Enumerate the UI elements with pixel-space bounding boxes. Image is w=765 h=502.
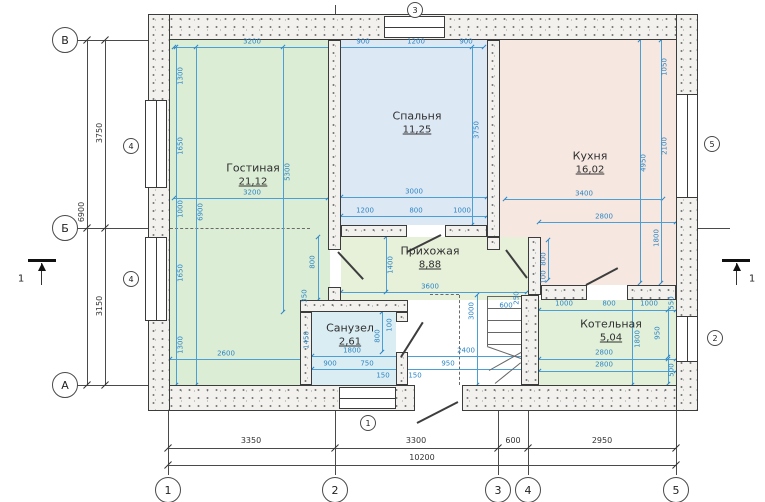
wall-segment: [300, 300, 408, 312]
wall-segment: [521, 295, 539, 385]
room-label: Санузел: [326, 322, 374, 335]
door-leaf: [400, 321, 424, 357]
dimension-line: [312, 356, 528, 357]
room-label: Гостиная: [226, 162, 280, 175]
dimension-label: 3750: [474, 121, 481, 139]
dimension-line: [341, 216, 487, 217]
dimension-label: 2800: [595, 362, 613, 369]
dimension-label: 950: [441, 361, 454, 368]
window-glass-line: [156, 238, 157, 320]
dimension-line: [548, 240, 549, 280]
section-mark-arrow: [733, 263, 741, 271]
axis-circle-3: 3: [485, 477, 511, 502]
window-glass-line: [687, 95, 688, 197]
axis-or-dim-line: [168, 465, 676, 466]
window-glass-line: [385, 27, 444, 28]
wall-segment: [341, 225, 407, 237]
room-area-label: 11,25: [403, 125, 432, 136]
dimension-label: 100: [387, 318, 394, 331]
dimension-label: 1200: [407, 39, 425, 46]
dimension-line: [661, 40, 662, 283]
dimension-line: [341, 197, 487, 198]
dimension-label: 1650: [178, 137, 185, 155]
dashed-line: [459, 295, 461, 385]
dimension-label: 1300: [178, 336, 185, 354]
window-mark-4: 4: [123, 138, 139, 154]
wall-segment: [328, 40, 341, 250]
axis-circle-В: В: [52, 27, 78, 53]
wall-segment: [148, 14, 170, 411]
dimension-line: [539, 222, 676, 223]
wall-segment: [396, 312, 408, 322]
dimension-label: 100: [541, 270, 548, 283]
dimension-label: 1000: [453, 208, 471, 215]
dimension-label: 6900: [78, 202, 86, 222]
dimension-label: 2950: [592, 437, 612, 445]
dimension-label: 6900: [198, 203, 205, 221]
room-area-label: 5,04: [600, 333, 622, 344]
dimension-label: 900: [459, 39, 472, 46]
wall-segment: [445, 225, 487, 237]
dimension-label: 1400: [388, 256, 395, 274]
dimension-label: 5300: [285, 163, 292, 181]
dimension-label: 600: [505, 437, 520, 445]
dimension-label: 3200: [243, 190, 261, 197]
axis-circle-А: А: [52, 372, 78, 398]
room-label: Спальня: [393, 110, 442, 123]
axis-circle-5: 5: [663, 477, 689, 502]
window-mark-1: 1: [360, 415, 376, 431]
dimension-label: 250: [514, 291, 521, 304]
room-area-label: 8,88: [419, 260, 441, 271]
section-mark-arrow: [38, 263, 46, 271]
dimension-label: 1050: [662, 58, 669, 76]
axis-circle-2: 2: [322, 477, 348, 502]
room-area-label: 21,12: [239, 177, 268, 188]
window: [676, 94, 698, 198]
dimension-label: 150: [376, 373, 389, 380]
room-area-label: 16,02: [576, 165, 605, 176]
axis-or-dim-line: [498, 411, 499, 475]
dimension-label: 550: [669, 296, 676, 309]
dimension-label: 500: [669, 363, 676, 376]
dimension-label: 900: [356, 39, 369, 46]
dimension-label: 1000: [640, 301, 658, 308]
dimension-label: 150: [408, 373, 421, 380]
dimension-label: 800: [602, 301, 615, 308]
dimension-label: 1000: [555, 301, 573, 308]
stair-winder-line: [487, 346, 521, 359]
dimension-label: 3150: [96, 296, 104, 316]
window-glass-line: [340, 398, 395, 399]
axis-circle-1: 1: [155, 477, 181, 502]
dimension-label: 350: [302, 289, 309, 302]
dimension-label: 1200: [356, 208, 374, 215]
dimension-label: 750: [360, 361, 373, 368]
dimension-label: 800: [310, 255, 317, 268]
floor-plan-canvas: 3200900120090013001650100016501300690053…: [0, 0, 765, 502]
wall-segment: [541, 285, 587, 300]
door-leaf: [417, 401, 459, 424]
axis-or-dim-line: [698, 228, 730, 229]
dimension-label: 900: [323, 361, 336, 368]
dimension-line: [668, 310, 669, 357]
dimension-line: [170, 359, 303, 360]
dimension-label: 600: [499, 303, 512, 310]
window: [384, 16, 445, 38]
dimension-line: [341, 292, 527, 293]
dimension-label: 4950: [641, 154, 648, 172]
dimension-label: 1800: [635, 330, 642, 348]
window-mark-4: 4: [123, 271, 139, 287]
stair-tread: [487, 320, 521, 321]
stair-tread: [487, 344, 521, 345]
room-area-label: 2,61: [339, 337, 361, 348]
window-glass-line: [156, 101, 157, 187]
dimension-label: 1300: [178, 67, 185, 85]
axis-circle-4: 4: [515, 477, 541, 502]
dimension-line: [382, 312, 383, 352]
dimension-label: 3000: [469, 302, 476, 320]
axis-or-dim-line: [105, 40, 106, 385]
section-mark-label: 1: [18, 274, 24, 285]
dimension-label: 800: [541, 252, 548, 265]
dimension-label: 2400: [457, 348, 475, 355]
wall-segment: [487, 237, 500, 250]
dimension-line: [174, 198, 328, 199]
room-label: Котельная: [580, 318, 642, 331]
dimension-line: [318, 237, 319, 300]
dashed-line: [430, 294, 459, 296]
dimension-label: 3300: [406, 437, 426, 445]
dimension-label: 950: [655, 326, 662, 339]
axis-or-dim-line: [168, 448, 676, 449]
axis-or-dim-line: [335, 411, 336, 475]
dimension-line: [312, 369, 528, 370]
dimension-label: 2800: [595, 350, 613, 357]
axis-or-dim-line: [87, 40, 88, 385]
dimension-label: 3000: [405, 189, 423, 196]
dimension-label: 3750: [96, 123, 104, 143]
window-glass-line: [687, 317, 688, 361]
dimension-line: [477, 295, 478, 385]
section-mark-bar: [28, 259, 56, 262]
wall-segment: [487, 40, 500, 237]
stair-tread: [487, 332, 521, 333]
dimension-label: 800: [375, 329, 382, 342]
wall-segment: [528, 237, 541, 295]
dimension-label: 2800: [595, 214, 613, 221]
dimension-label: 3200: [243, 39, 261, 46]
section-mark-bar: [722, 259, 750, 262]
dimension-label: 3400: [575, 191, 593, 198]
dimension-label: 2100: [662, 137, 669, 155]
window: [676, 316, 698, 362]
dimension-label: 1800: [654, 229, 661, 247]
dimension-line: [539, 371, 676, 372]
window: [145, 100, 167, 188]
stair-tread: [487, 296, 488, 346]
wall-segment: [462, 385, 698, 411]
dimension-label: 1000: [178, 200, 185, 218]
window-mark-3: 3: [407, 2, 423, 18]
dimension-label: 1800: [343, 348, 361, 355]
window-mark-5: 5: [704, 136, 720, 152]
dimension-label: 800: [409, 208, 422, 215]
dashed-line: [170, 228, 310, 230]
dimension-label: 1650: [178, 264, 185, 282]
window: [339, 387, 396, 409]
dimension-label: 3350: [241, 437, 261, 445]
dimension-label: 2600: [217, 351, 235, 358]
section-mark-label: 1: [749, 274, 755, 285]
room-label: Кухня: [573, 150, 608, 163]
dimension-label: 3600: [421, 284, 439, 291]
dimension-label: 1450: [304, 331, 311, 349]
axis-circle-Б: Б: [52, 215, 78, 241]
window-mark-2: 2: [707, 330, 723, 346]
axis-or-dim-line: [528, 411, 529, 475]
room-label: Прихожая: [401, 245, 460, 258]
window: [145, 237, 167, 321]
dimension-label: 10200: [409, 454, 434, 462]
dimension-line: [539, 310, 676, 311]
